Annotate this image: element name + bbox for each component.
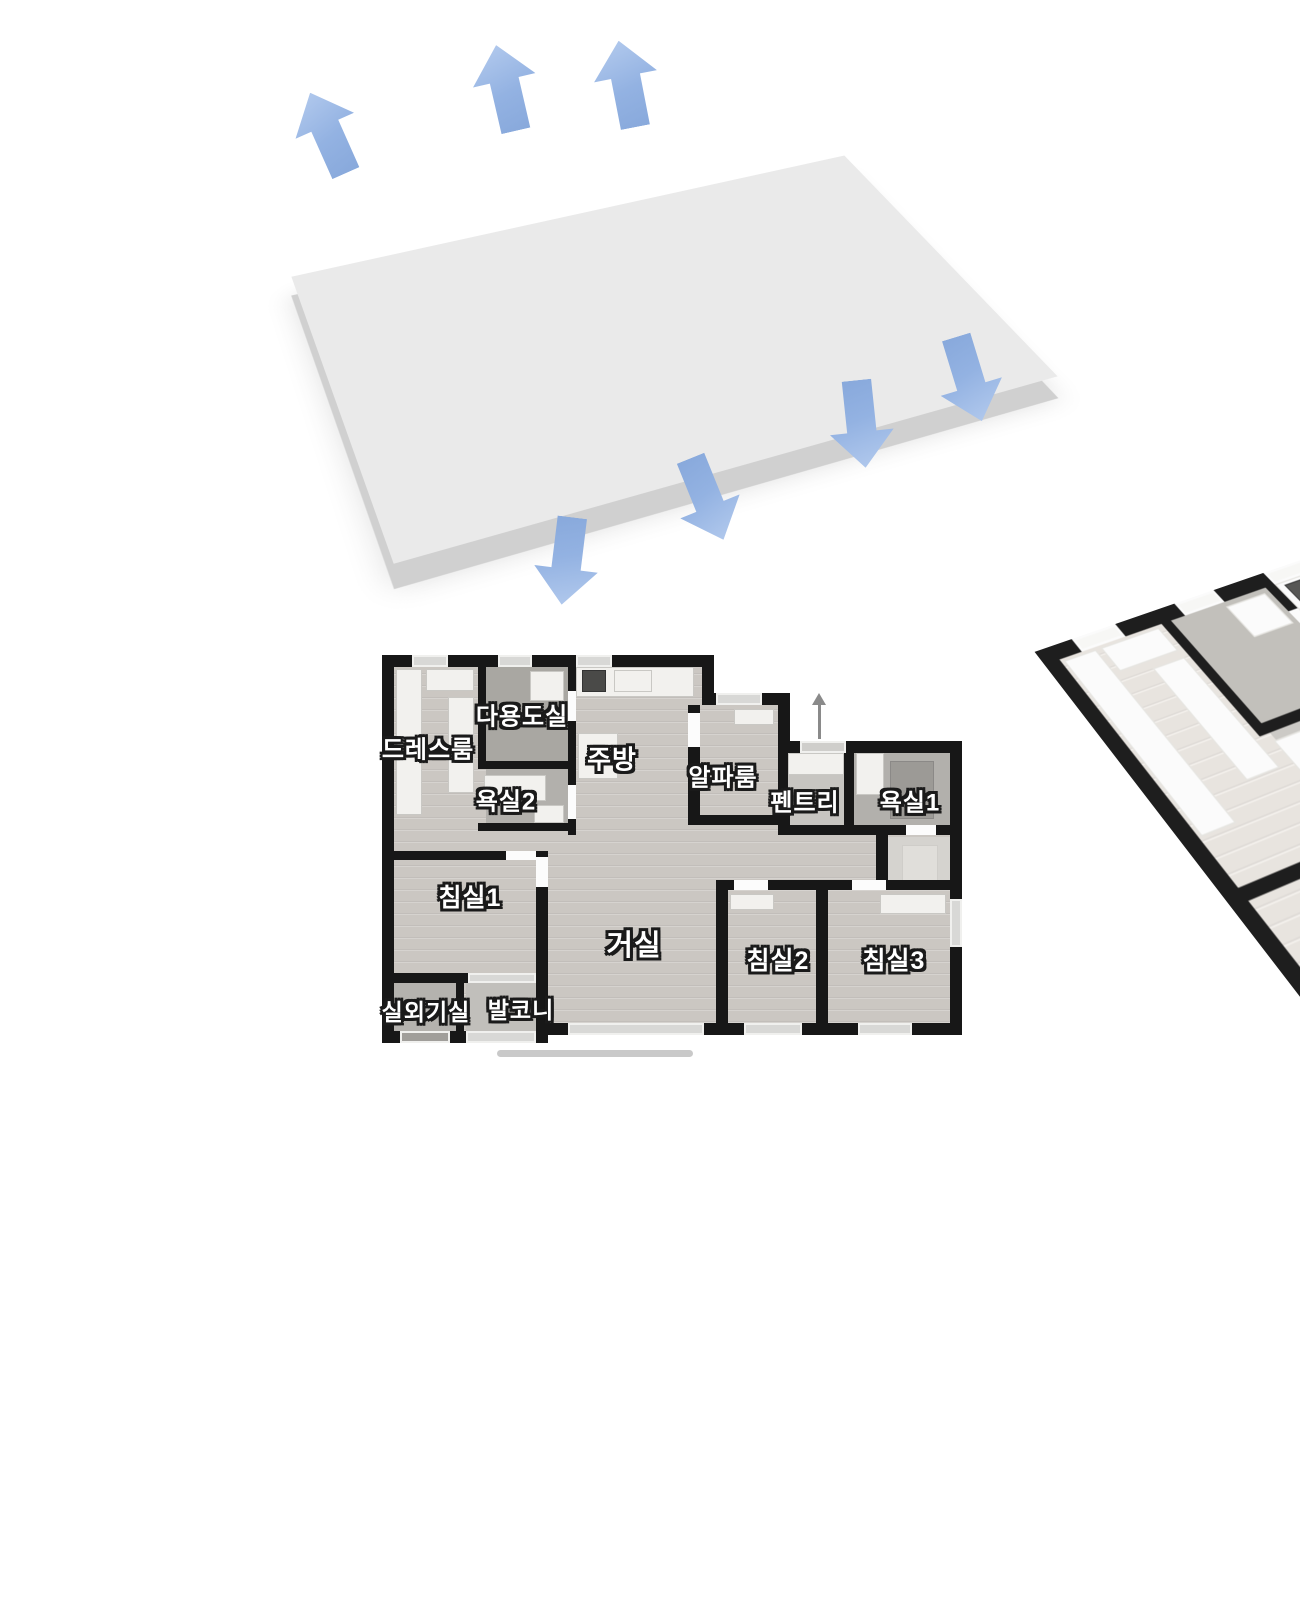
fixture bbox=[788, 753, 844, 775]
room-label-dressroom: 드레스룸 bbox=[382, 730, 474, 765]
window bbox=[466, 1031, 536, 1043]
fixture bbox=[582, 670, 606, 692]
room-label-bedroom1: 침실1 bbox=[439, 878, 502, 914]
room-label-bedroom3: 침실3 bbox=[863, 941, 926, 977]
wall-segment bbox=[394, 851, 506, 860]
window bbox=[800, 741, 846, 753]
room-label-utility: 다용도실 bbox=[476, 697, 568, 732]
window bbox=[498, 655, 532, 667]
door-opening bbox=[906, 825, 936, 835]
fixture bbox=[880, 894, 946, 914]
door-opening bbox=[568, 691, 576, 721]
wall-segment bbox=[844, 751, 854, 827]
wall-segment bbox=[716, 880, 728, 1023]
wall-segment bbox=[816, 880, 828, 1023]
fixture bbox=[730, 894, 774, 910]
2d-floorplan: 드레스룸다용도실주방욕실2알파룸펜트리욕실1침실1거실침실2침실3실외기실발코니 bbox=[382, 655, 962, 1045]
room-label-kitchen: 주방 bbox=[587, 740, 637, 777]
fixture bbox=[902, 845, 938, 885]
entrance-arrow-line bbox=[818, 705, 821, 739]
wall-segment bbox=[478, 761, 576, 769]
window bbox=[568, 1023, 704, 1035]
door-opening bbox=[536, 857, 548, 887]
door-opening bbox=[688, 713, 700, 747]
room-label-acroom: 실외기실 bbox=[382, 993, 471, 1027]
door-opening bbox=[568, 785, 576, 819]
room-label-alpha: 알파룸 bbox=[688, 758, 757, 793]
iso-3d-plan-copy: 드레스룸다용도실주방욕실2알파룸펜트리욕실1침실1거실침실2침실3실외기실발코니 bbox=[1035, 439, 1300, 1230]
room-label-balcony: 발코니 bbox=[488, 991, 554, 1025]
window bbox=[468, 973, 536, 983]
fixture bbox=[614, 670, 652, 692]
fixture bbox=[534, 805, 564, 823]
window bbox=[576, 655, 612, 667]
room-label-bath1: 욕실1 bbox=[880, 783, 941, 818]
fixture bbox=[426, 669, 474, 691]
room-label-bedroom2: 침실2 bbox=[747, 941, 810, 977]
wall-segment bbox=[478, 823, 576, 831]
entrance-direction-arrow bbox=[811, 693, 827, 739]
wall-segment bbox=[382, 655, 394, 1043]
door-opening bbox=[506, 851, 536, 860]
floorplan-page: { "colors": { "wall": "#171717", "wood_f… bbox=[0, 0, 1300, 1100]
window bbox=[744, 1023, 802, 1035]
entrance-arrow-head bbox=[812, 693, 826, 705]
door-opening bbox=[734, 880, 768, 890]
door-opening bbox=[852, 880, 886, 890]
window bbox=[858, 1023, 912, 1035]
window bbox=[400, 1031, 450, 1043]
window bbox=[412, 655, 448, 667]
wall-segment bbox=[394, 973, 468, 983]
airflow-arrow-up-1 bbox=[281, 80, 375, 186]
window bbox=[950, 899, 962, 947]
plan-shadow bbox=[497, 1050, 693, 1057]
room-label-pantry: 펜트리 bbox=[770, 783, 839, 818]
floor-area bbox=[700, 693, 790, 1035]
fixture bbox=[734, 709, 774, 725]
room-label-living: 거실 bbox=[606, 922, 661, 964]
window bbox=[716, 693, 762, 705]
room-label-bath2: 욕실2 bbox=[476, 782, 537, 817]
